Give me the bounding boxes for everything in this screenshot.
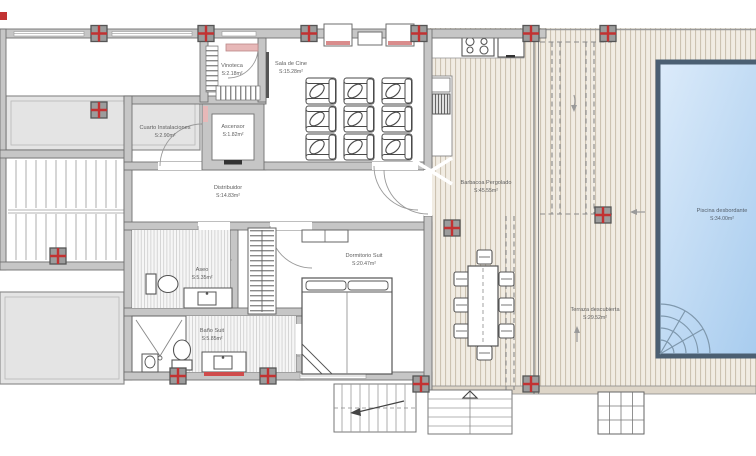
column-icon	[170, 368, 186, 384]
bano-red-strip	[204, 372, 244, 376]
label-piscina-name: Piscina desbordante	[697, 208, 748, 214]
label-dormitorio-name: Dormitorio Suit	[346, 253, 383, 259]
bano-pedestal-sink	[142, 354, 158, 372]
label-vinoteca-name: Vinoteca	[221, 63, 244, 69]
wall-left-edge	[0, 29, 6, 270]
chair	[454, 272, 469, 286]
cinema-seat	[306, 106, 336, 132]
cinema-seat	[306, 134, 336, 160]
cinema-seat	[306, 78, 336, 104]
bano-faucet	[222, 356, 225, 359]
label-barbacoa-name: Barbacoa Pergolado	[460, 180, 511, 186]
column-icon	[50, 248, 66, 264]
cinema-seat	[344, 78, 374, 104]
chair	[454, 298, 469, 312]
label-instalaciones-name: Cuarto Instalaciones	[140, 125, 191, 131]
chair	[477, 250, 492, 264]
aseo-faucet	[206, 292, 209, 295]
column-icon	[523, 26, 539, 42]
wall-deck-lower	[424, 216, 432, 390]
chair	[499, 298, 514, 312]
label-terraza-area: S:29.52m²	[583, 315, 607, 321]
column-icon	[444, 220, 460, 236]
label-bano-area: S:5.85m²	[201, 336, 222, 342]
label-bano-name: Baño Suit	[200, 328, 225, 334]
window-sill-red-1	[326, 41, 350, 45]
door-leaf-vinoteca	[226, 44, 258, 51]
label-cine-area: S:15.28m²	[279, 69, 303, 75]
label-ascensor-name: Ascensor	[221, 124, 244, 130]
column-icon	[595, 207, 611, 223]
floor-plan: Vinoteca S:2.18m² Sala de Cine S:15.28m²…	[0, 0, 756, 456]
label-piscina-area: S:34.00m²	[710, 216, 734, 222]
elevator-frame-pink	[203, 106, 208, 122]
toilet-tank	[146, 274, 156, 294]
staircase-left	[6, 158, 124, 262]
bano-toilet-icon	[174, 340, 191, 360]
column-icon	[260, 368, 276, 384]
column-icon	[523, 376, 539, 392]
label-aseo-area: S:5.35m²	[191, 275, 212, 281]
label-distribuidor-area: S:14.83m²	[216, 193, 240, 199]
label-vinoteca-area: S:2.18m²	[221, 71, 242, 77]
slab-bottom-left	[0, 292, 124, 384]
cinema-seat	[344, 106, 374, 132]
bbq-grill-icon	[430, 94, 450, 114]
column-icon	[301, 26, 317, 42]
column-icon	[198, 26, 214, 42]
column-marker-edge	[0, 12, 7, 20]
wall-bano-top	[124, 308, 304, 316]
column-icon	[91, 26, 107, 42]
door-gap-deck	[424, 170, 432, 216]
door-gap-aseo	[198, 222, 230, 230]
stair-c	[598, 392, 644, 434]
chair	[477, 346, 492, 360]
label-aseo-name: Aseo	[196, 267, 209, 273]
label-cine-name: Sala de Cine	[275, 61, 307, 67]
wall-deck-upper	[424, 29, 432, 170]
cinema-seat	[382, 106, 412, 132]
wall-rooms-left	[124, 96, 132, 380]
cinema-seat	[382, 78, 412, 104]
cinema-screen	[266, 52, 269, 98]
label-terraza-name: Terraza descubierta	[570, 307, 620, 313]
wall-left-band-1	[0, 150, 132, 158]
column-icon	[91, 102, 107, 118]
exterior-stairs	[334, 384, 644, 434]
door-arc-cine	[374, 166, 418, 210]
cinema-seat	[344, 134, 374, 160]
bbq-cabinet	[430, 78, 450, 92]
door-gap-cine	[372, 162, 418, 170]
stair-b	[428, 390, 512, 434]
label-barbacoa-area: S:45.55m²	[474, 188, 498, 194]
cinema-seat	[382, 134, 412, 160]
chair	[454, 324, 469, 338]
label-dormitorio-area: S:20.47m²	[352, 261, 376, 267]
chair	[499, 324, 514, 338]
chair	[499, 272, 514, 286]
column-icon	[413, 376, 429, 392]
column-icon	[411, 26, 427, 42]
window-sill-red-2	[388, 41, 412, 45]
stair-a	[334, 384, 416, 432]
label-ascensor-area: S:1.82m²	[222, 132, 243, 138]
window-box-2	[358, 32, 382, 45]
door-gap-instalaciones	[158, 162, 202, 170]
label-instalaciones-area: S:2.90m²	[154, 133, 175, 139]
bano-room	[132, 316, 296, 376]
wine-rack-bottom	[216, 86, 260, 100]
aseo-room	[132, 230, 232, 308]
column-icon	[600, 26, 616, 42]
pillow	[306, 281, 346, 290]
cabinet-handle	[506, 55, 515, 58]
floor-plan-drawing: Vinoteca S:2.18m² Sala de Cine S:15.28m²…	[0, 0, 756, 456]
pillow	[348, 281, 388, 290]
elevator-door	[224, 160, 242, 165]
toilet-icon	[158, 276, 178, 293]
wine-rack-left	[206, 46, 218, 92]
label-distribuidor-name: Distribuidor	[214, 185, 242, 191]
